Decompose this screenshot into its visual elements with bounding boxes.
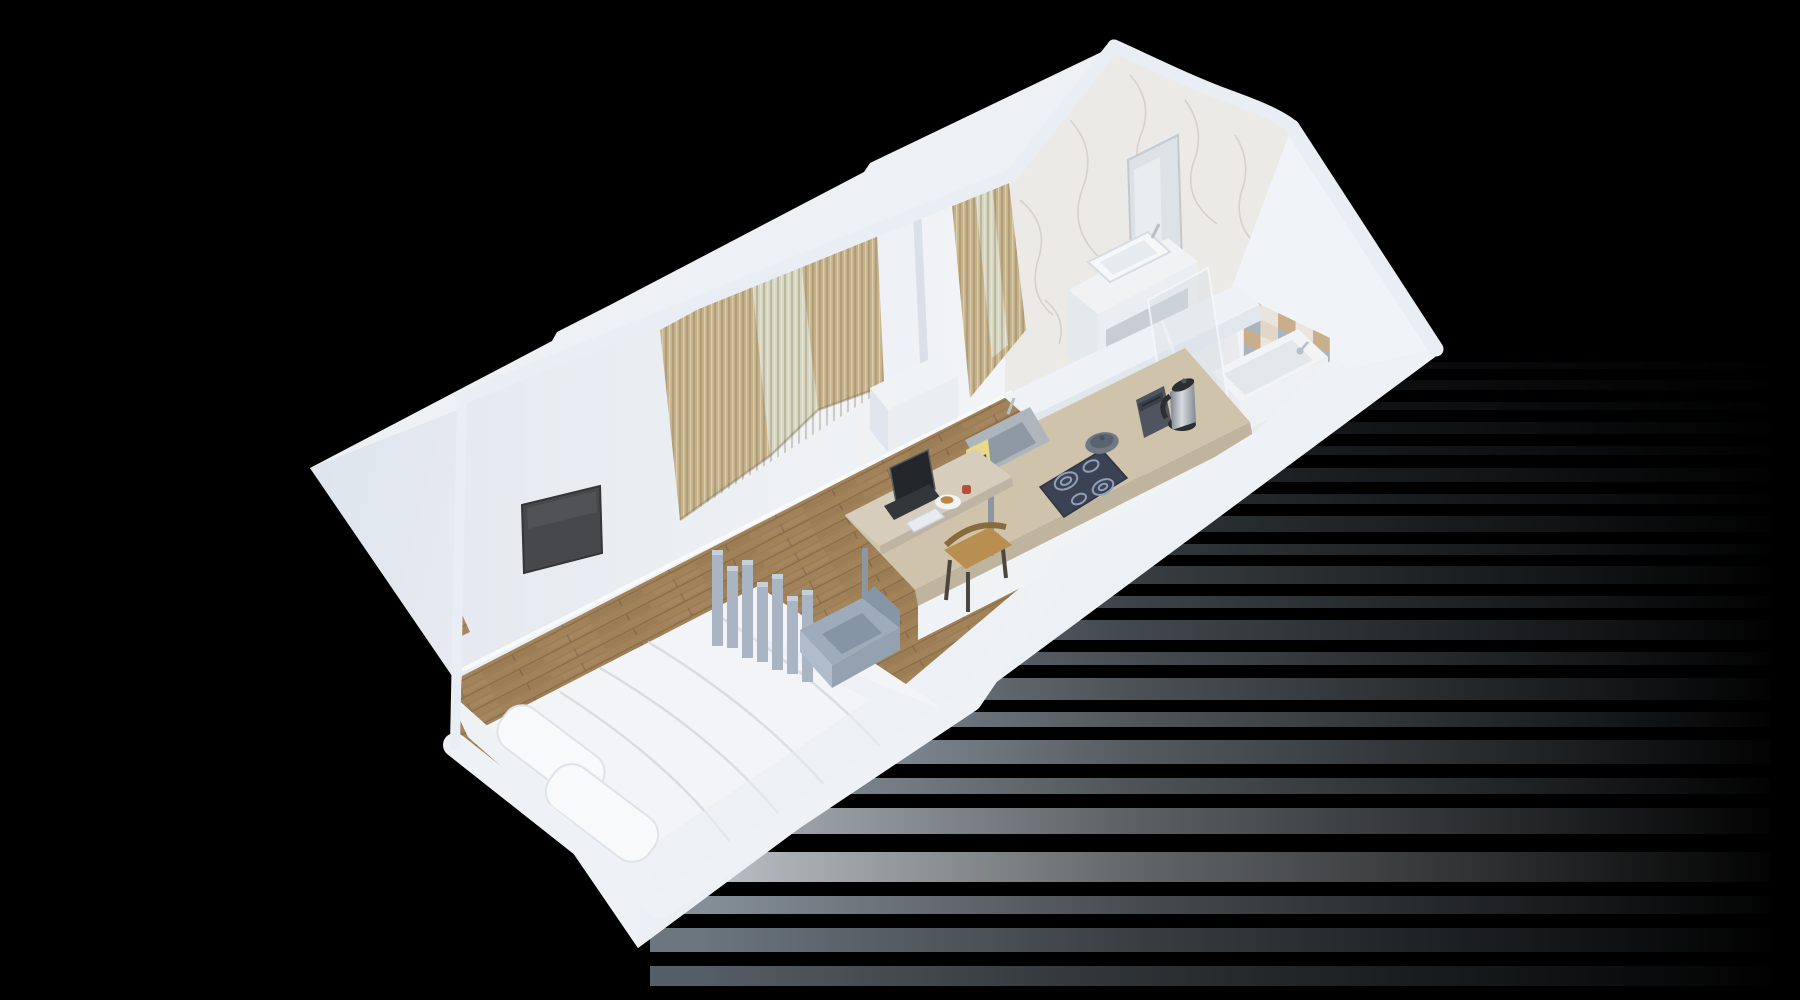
plate <box>935 495 961 510</box>
render-viewport <box>0 0 1800 1000</box>
left-wall-top <box>455 398 462 745</box>
red-cup <box>962 485 971 494</box>
floorplan-3d-render <box>0 0 1800 1000</box>
croissant <box>941 496 954 504</box>
